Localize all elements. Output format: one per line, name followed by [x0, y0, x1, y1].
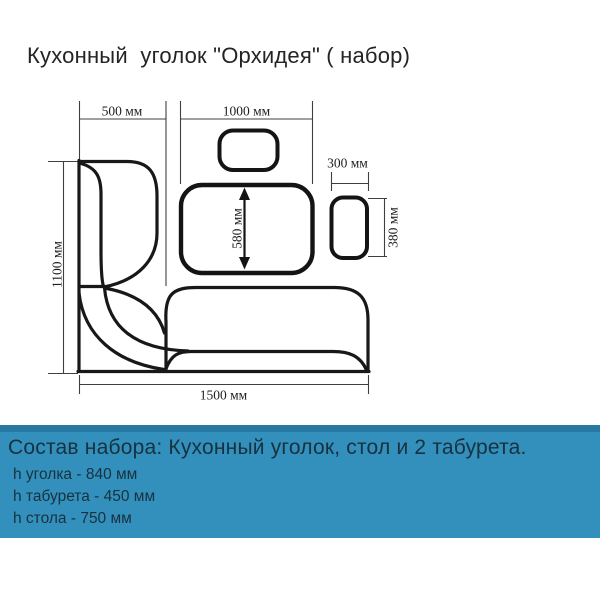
- stool-front-view: [332, 198, 368, 259]
- height-spec-stool: h табурета - 450 мм: [13, 486, 600, 508]
- set-contents-heading: Состав набора: Кухонный уголок, стол и 2…: [8, 435, 600, 461]
- dim-label-300: 300 мм: [327, 156, 368, 171]
- dim-label-580: 580 мм: [230, 208, 245, 249]
- bench-long-outer: [166, 288, 368, 372]
- height-spec-corner: h уголка - 840 мм: [13, 464, 600, 486]
- stool-top-view: [220, 131, 278, 171]
- dim-label-500: 500 мм: [102, 104, 143, 119]
- arrow-head-down: [239, 257, 250, 270]
- height-spec-table: h стола - 750 мм: [13, 508, 600, 530]
- arrow-head-up: [239, 188, 250, 201]
- corner-seat-arc-outer: [79, 293, 164, 370]
- product-card: Кухонный уголок "Орхидея" ( набор): [0, 0, 600, 600]
- bench-backrest-inner: [81, 164, 104, 287]
- dim-label-1500: 1500 мм: [200, 388, 248, 403]
- dim-label-380: 380 мм: [386, 207, 401, 248]
- set-contents-banner: Состав набора: Кухонный уголок, стол и 2…: [0, 425, 600, 538]
- bench-seat-front: [166, 352, 367, 371]
- corner-seat-arc-inner: [105, 288, 189, 351]
- corner-back-connector: [107, 289, 165, 334]
- corner-bench-drawing: [78, 161, 369, 372]
- dim-label-1100: 1100 мм: [50, 241, 65, 288]
- dim-label-1000: 1000 мм: [223, 104, 271, 119]
- bench-backrest-outer: [79, 162, 157, 288]
